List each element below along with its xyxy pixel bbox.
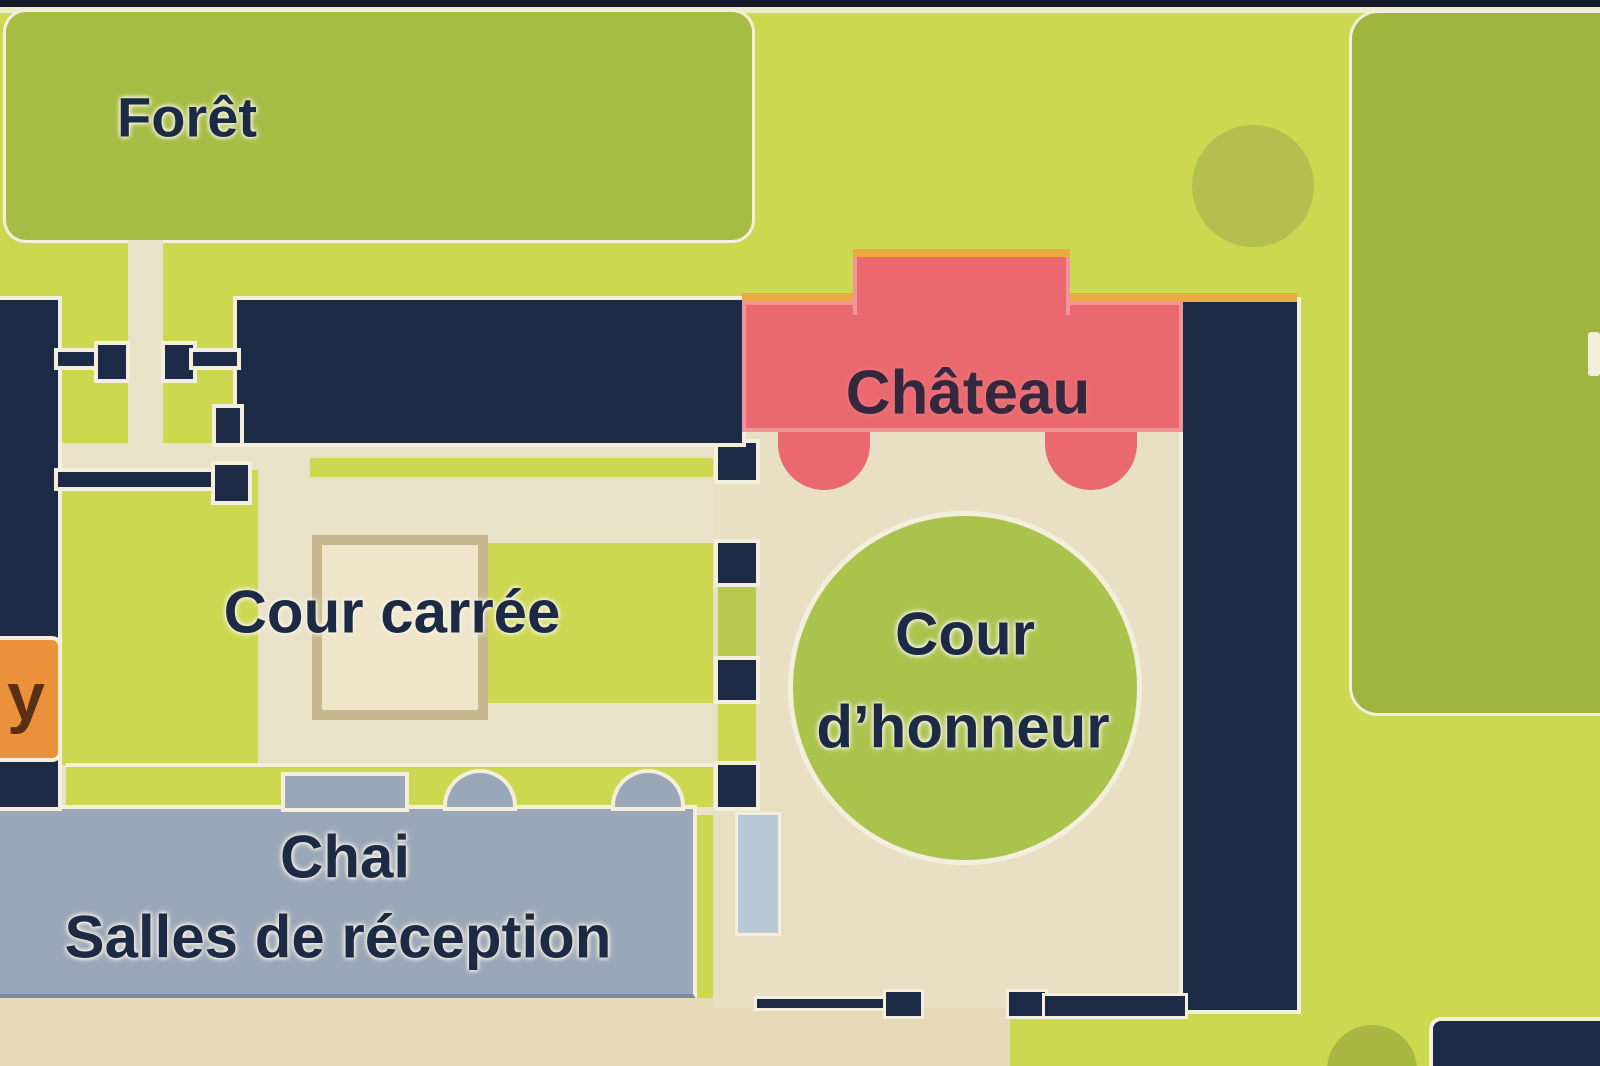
estate-map[interactable]: Forêt Château Cour carrée Cour d’honneur…: [0, 0, 1600, 1066]
south-gate-post: [886, 992, 921, 1016]
cour-carree-lawn-north: [310, 458, 713, 477]
chai-bump-square: [285, 776, 405, 808]
ramp-feature: [738, 815, 778, 933]
south-gate-post: [1009, 992, 1045, 1016]
gate-bar: [58, 352, 98, 366]
map-top-edge: [0, 0, 1600, 7]
cour-honneur-lawn-circle: [788, 511, 1142, 865]
colonnade-pillar: [718, 443, 756, 480]
gate-post: [215, 465, 248, 501]
tree-circle-top-right: [1192, 125, 1314, 247]
label-salles-de-reception: Salles de réception: [65, 903, 612, 972]
path-vertical: [128, 240, 163, 450]
colonnade-strip: [718, 583, 756, 660]
north-wing-step: [216, 408, 240, 443]
tree-circle-bottom-right: [1327, 1025, 1417, 1066]
gate-bar: [193, 352, 237, 366]
colonnade-pillar: [718, 543, 756, 583]
label-cour-honneur-line1: Cour: [895, 600, 1035, 669]
label-cour-honneur-line2: d’honneur: [816, 693, 1109, 762]
label-foret: Forêt: [117, 85, 257, 150]
north-wing-building: [237, 300, 742, 443]
south-wall: [1045, 996, 1185, 1016]
label-left-partial: y: [7, 658, 45, 736]
right-edge-mark: [1588, 332, 1600, 376]
gate-post: [165, 345, 193, 379]
east-wing-wall: [1183, 301, 1297, 1010]
south-wall: [757, 999, 886, 1008]
colonnade-pillar: [718, 765, 756, 807]
label-chai: Chai: [280, 823, 410, 892]
building-bottom-right: [1433, 1021, 1600, 1066]
colonnade-strip: [718, 700, 756, 765]
label-chateau: Château: [846, 358, 1091, 429]
gate-post: [98, 345, 126, 379]
colonnade-pillar: [718, 660, 756, 700]
label-cour-carree: Cour carrée: [224, 578, 561, 647]
terrace-bottom: [0, 998, 1010, 1066]
park-area-right: [1352, 13, 1600, 713]
chateau-central-pavilion: [853, 249, 1070, 315]
gate-bar: [58, 472, 215, 487]
